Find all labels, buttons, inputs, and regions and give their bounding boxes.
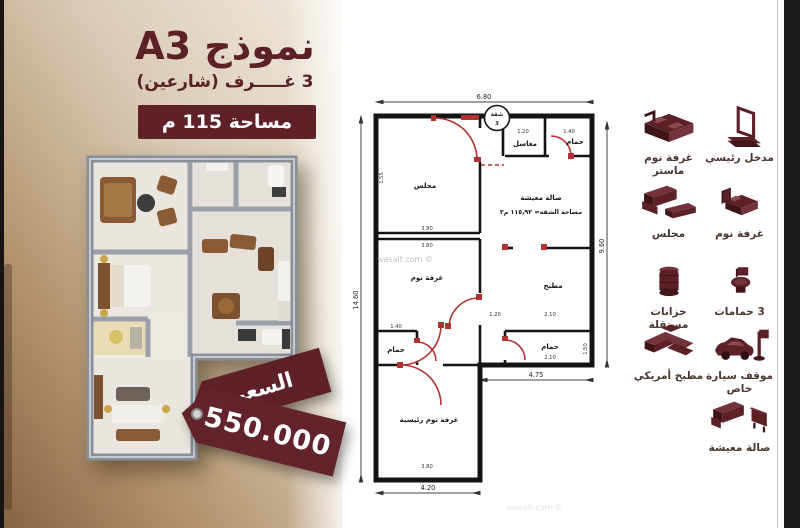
dim-140: 1.40	[390, 324, 402, 330]
dim-380: 3.80	[421, 243, 433, 249]
label-bedroom: غرفة نوم	[411, 274, 444, 282]
master-bedroom-icon	[639, 104, 699, 150]
left-edge-bar	[4, 264, 12, 510]
price-value: 550.000	[201, 401, 335, 463]
majlis-icon	[638, 180, 700, 226]
dim-120: 1.20	[489, 312, 501, 318]
dim-right: 9.60	[598, 239, 606, 254]
legend-label: صالة معيشة	[709, 442, 771, 455]
dim-150: 1.50	[583, 343, 589, 355]
legend-item-bedroom: غرفة نوم	[704, 180, 775, 258]
bathrooms-icon	[718, 258, 762, 304]
right-edge-line	[777, 0, 778, 528]
legend-label: مجلس	[652, 228, 685, 241]
dim-140: 1.40	[563, 129, 575, 135]
legend-item-american-kitchen: مطبخ أمريكي	[633, 322, 704, 394]
parking-icon	[709, 322, 771, 368]
price-tags: السعر 550.000	[176, 350, 346, 482]
legend: مدخل رئيسي غرفة نوم ماستر غرفة نوم مجلس …	[633, 104, 775, 466]
legend-item-bathrooms: 3 حمامات	[704, 258, 775, 322]
bedroom-icon	[714, 180, 766, 226]
right-edge-strip	[784, 0, 800, 528]
label-bath-top: حمام	[566, 138, 584, 146]
dim-left: 14.60	[352, 291, 360, 310]
legend-item-parking: موقف سيارة خاص	[704, 322, 775, 394]
american-kitchen-icon	[639, 322, 699, 368]
label-master-bedroom: غرفة نوم رئيسية	[400, 416, 459, 424]
main-entrance-icon	[711, 104, 769, 150]
stamp-line2: 3	[495, 121, 499, 127]
label-sinks: مغاسل	[513, 140, 537, 148]
watermark: wasalt.com ©	[377, 255, 433, 264]
label-majlis: مجلس	[414, 182, 436, 190]
label-bath-left: حمام	[387, 346, 405, 354]
legend-label: غرفة نوم ماستر	[633, 152, 704, 178]
floor-plan: 6.80 14.60 9.60 4.20 4.75	[345, 88, 625, 526]
dim-380: 3.80	[421, 464, 433, 470]
legend-label: غرفة نوم	[715, 228, 764, 241]
legend-label: 3 حمامات	[714, 306, 765, 319]
legend-label: مطبخ أمريكي	[634, 370, 704, 383]
dim-top: 6.80	[477, 93, 492, 101]
dim-bottom: 4.20	[421, 484, 436, 492]
water-tanks-icon	[647, 258, 691, 304]
tag-grommet	[190, 407, 205, 422]
model-subtitle: 3 غـــــرف (شارعين)	[110, 72, 340, 92]
dim-210: 2.10	[544, 312, 556, 318]
dim-210: 2.10	[544, 355, 556, 361]
dim-380: 3.80	[421, 226, 433, 232]
watermark: wasalt.com ©	[507, 503, 563, 512]
dim-155: 1.55	[379, 172, 385, 184]
model-title: نموذج A3	[110, 24, 340, 68]
legend-item-living-room: صالة معيشة	[704, 394, 775, 466]
living-room-icon	[709, 394, 771, 440]
stamp-line1: شقة	[491, 112, 503, 118]
legend-item-majlis: مجلس	[633, 180, 704, 258]
label-kitchen: مطبخ	[543, 282, 562, 290]
dim-120: 1.20	[517, 129, 529, 135]
label-living: صالة معيشة	[520, 194, 561, 202]
legend-item-water-tanks: خزانات مستقلة	[633, 258, 704, 322]
label-bath-right: حمام	[541, 343, 559, 351]
legend-label: مدخل رئيسي	[705, 152, 774, 165]
legend-label: موقف سيارة خاص	[704, 370, 775, 396]
legend-item-master-bedroom: غرفة نوم ماستر	[633, 104, 704, 180]
legend-item-main-entrance: مدخل رئيسي	[704, 104, 775, 180]
area-badge: مساحة 115 م	[138, 105, 316, 139]
dim-wing: 4.75	[529, 371, 544, 379]
label-area: مساحة الشقة= ١١٥٫٩٢ م٢	[500, 209, 582, 216]
